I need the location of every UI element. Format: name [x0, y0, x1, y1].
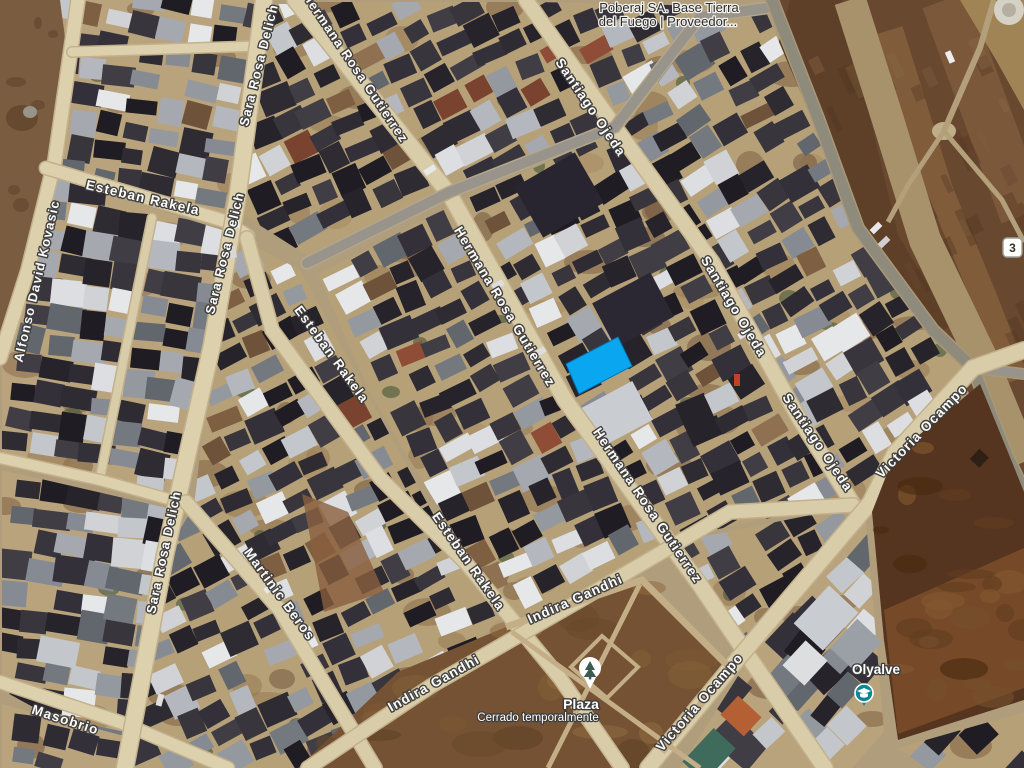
svg-text:Plaza: Plaza: [563, 696, 599, 712]
svg-text:Cerrado temporalmente: Cerrado temporalmente: [477, 712, 598, 724]
svg-text:del Fuego | Proveedor...: del Fuego | Proveedor...: [599, 14, 738, 29]
svg-text:Poberaj SA. Base Tierra: Poberaj SA. Base Tierra: [599, 0, 739, 15]
svg-text:Olyalve: Olyalve: [852, 662, 901, 677]
svg-text:3: 3: [1009, 241, 1016, 255]
